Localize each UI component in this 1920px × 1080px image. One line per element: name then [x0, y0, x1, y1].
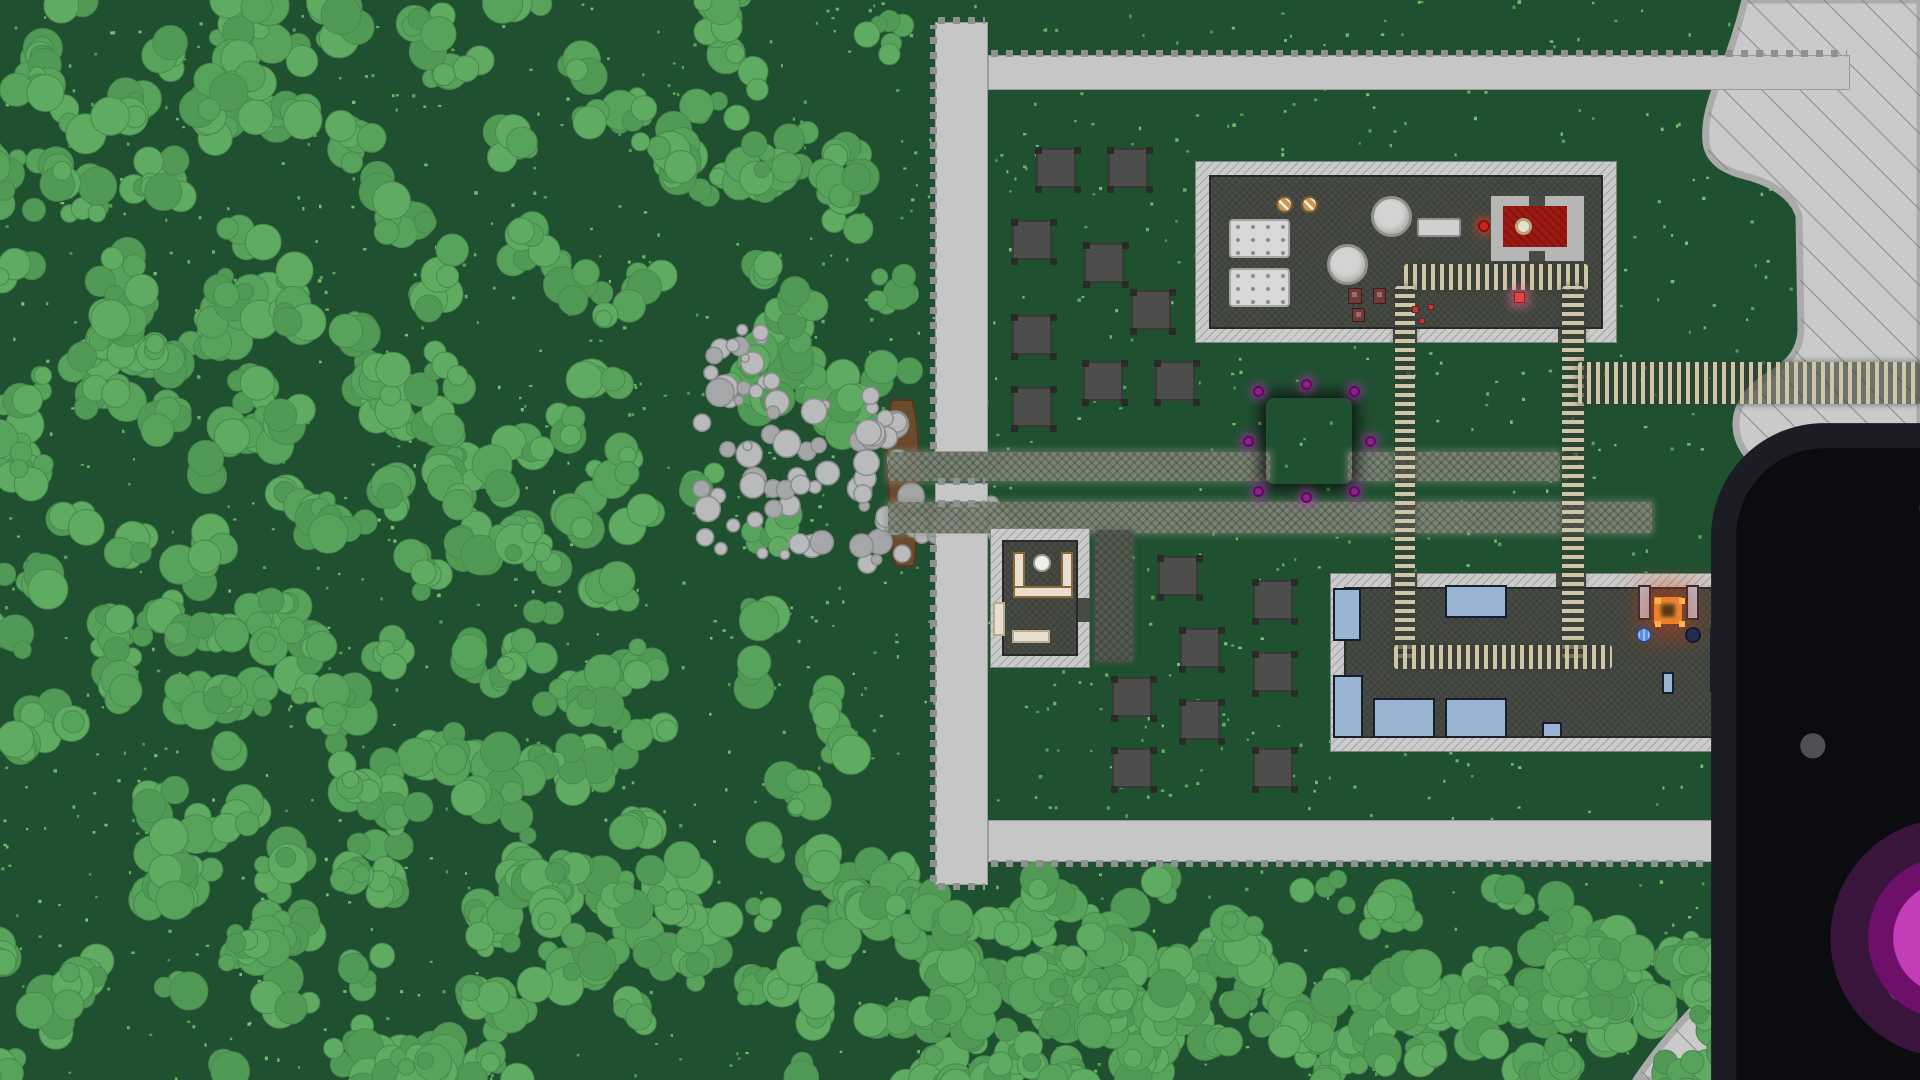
altar-doorway[interactable] — [1529, 251, 1545, 261]
ritual-marker[interactable] — [1365, 436, 1376, 447]
glowing-relic[interactable] — [1514, 292, 1525, 303]
storage-tank[interactable] — [1327, 244, 1368, 285]
storage-crate[interactable] — [1373, 288, 1386, 304]
barrel[interactable] — [1301, 196, 1318, 213]
red-lamp — [1478, 220, 1490, 232]
desk-stool[interactable] — [1033, 554, 1051, 572]
dropped-item — [1419, 318, 1425, 324]
objects-layer — [0, 0, 1920, 1080]
desk-counter — [1013, 586, 1073, 598]
ritual-marker[interactable] — [1253, 386, 1264, 397]
bench — [993, 602, 1005, 636]
bench — [1012, 630, 1050, 643]
ritual-marker[interactable] — [1349, 386, 1360, 397]
storage-crate[interactable] — [1352, 308, 1365, 322]
crate-latch — [1352, 292, 1357, 297]
altar-room[interactable] — [1491, 196, 1584, 261]
ritual-marker[interactable] — [1243, 436, 1254, 447]
red-carpet — [1503, 206, 1567, 247]
ritual-marker[interactable] — [1301, 379, 1312, 390]
altar-doorway[interactable] — [1529, 196, 1545, 206]
bed[interactable] — [1229, 219, 1290, 258]
reception-desk[interactable] — [1013, 552, 1073, 598]
work-table[interactable] — [1417, 218, 1461, 237]
plank-walkway — [1404, 264, 1588, 290]
ritual-marker[interactable] — [1301, 492, 1312, 503]
altar-disc[interactable] — [1515, 218, 1532, 235]
bed[interactable] — [1229, 268, 1290, 307]
crate-latch — [1377, 292, 1382, 297]
dropped-item — [1428, 304, 1434, 310]
game-map — [0, 0, 1920, 1080]
barrel[interactable] — [1276, 196, 1293, 213]
storage-tank[interactable] — [1371, 196, 1412, 237]
void-monolith[interactable] — [1266, 398, 1352, 484]
crate-latch — [1356, 312, 1361, 317]
dropped-item — [1412, 306, 1419, 313]
ritual-marker[interactable] — [1253, 486, 1264, 497]
void-monolith-art — [1266, 398, 1920, 1080]
storage-crate[interactable] — [1348, 288, 1362, 304]
ritual-marker[interactable] — [1349, 486, 1360, 497]
